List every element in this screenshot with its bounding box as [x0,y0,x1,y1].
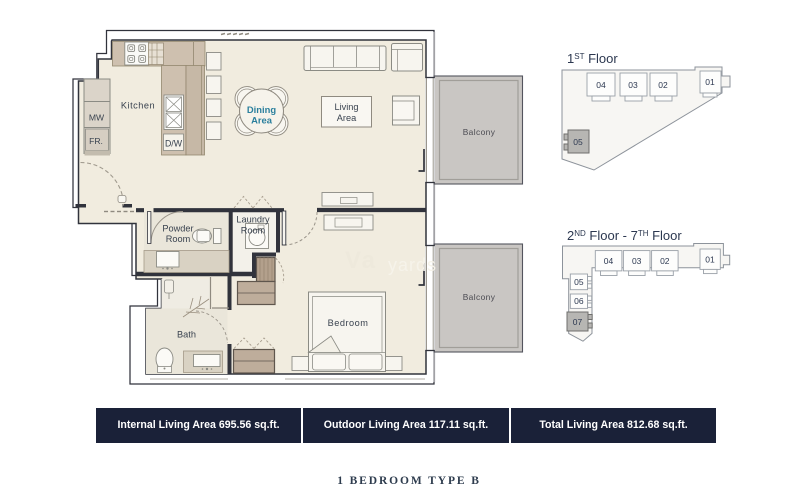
svg-text:Bath: Bath [177,330,196,340]
svg-text:03: 03 [628,80,638,90]
svg-text:2ND Floor - 7TH Floor: 2ND Floor - 7TH Floor [567,228,682,243]
svg-text:02: 02 [658,80,668,90]
svg-text:04: 04 [596,80,606,90]
svg-text:Bedroom: Bedroom [328,318,369,328]
svg-text:Area: Area [251,115,273,126]
svg-text:Dining: Dining [247,104,276,115]
svg-text:Powder: Powder [162,224,193,234]
svg-text:Laundry: Laundry [236,215,270,225]
svg-text:D/W: D/W [165,139,183,149]
svg-text:Va: Va [345,247,377,274]
svg-text:Balcony: Balcony [463,127,496,137]
svg-text:06: 06 [574,296,584,306]
svg-text:03: 03 [632,256,642,266]
svg-text:01: 01 [705,77,715,87]
svg-text:MW: MW [89,113,105,123]
svg-text:Balcony: Balcony [463,292,496,302]
svg-text:04: 04 [604,256,614,266]
svg-text:Room: Room [241,226,266,236]
svg-text:yards: yards [388,255,437,275]
svg-text:01: 01 [705,255,715,265]
svg-text:Area: Area [337,113,357,123]
svg-text:1ST Floor: 1ST Floor [567,51,618,66]
svg-text:02: 02 [660,256,670,266]
svg-text:05: 05 [573,137,583,147]
svg-text:Living: Living [334,102,358,112]
svg-text:Kitchen: Kitchen [121,101,155,111]
svg-text:FR.: FR. [89,136,103,146]
svg-text:Room: Room [166,234,191,244]
svg-text:05: 05 [574,277,584,287]
svg-text:07: 07 [573,317,583,327]
